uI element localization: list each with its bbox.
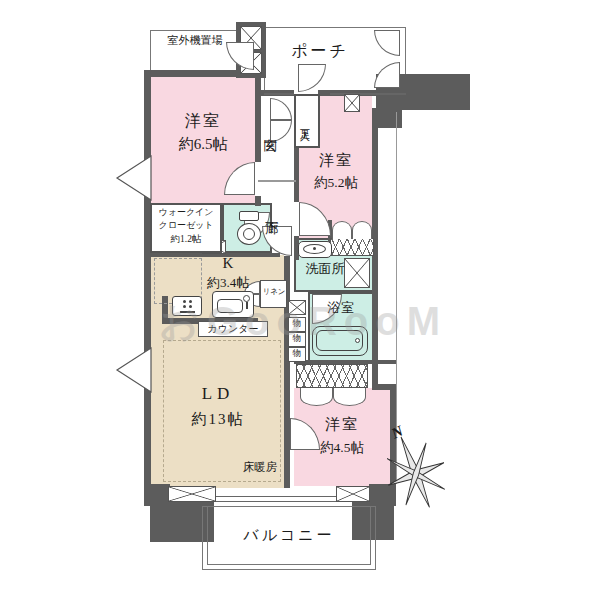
balcony-sash-a bbox=[214, 496, 336, 497]
vanity-sink-icon bbox=[298, 241, 332, 258]
closet-bedroom3-hatch bbox=[296, 364, 368, 388]
porch-bottom-a bbox=[264, 93, 294, 95]
ps-xbox-linen bbox=[288, 300, 306, 315]
label-balcony: バルコニー bbox=[226, 527, 352, 544]
closet-bedroom3-door-1 bbox=[300, 388, 333, 406]
window-triangle-lower bbox=[114, 346, 152, 394]
label-wic-line3: 約1.2帖 bbox=[152, 234, 220, 245]
label-storage-3: 物 bbox=[288, 349, 306, 359]
kitchen-sink-icon bbox=[212, 291, 254, 318]
label-shoe-box: 下足入 bbox=[299, 99, 311, 145]
wall-bedroom1-right-b bbox=[255, 196, 261, 206]
label-storage-1: 物 bbox=[288, 319, 306, 329]
wall-left bbox=[144, 70, 151, 506]
label-floor-heating: 床暖房 bbox=[222, 461, 298, 474]
closet-bedroom3-door-2 bbox=[333, 388, 366, 406]
wall-bedroom1-right-a bbox=[255, 70, 261, 162]
label-porch: ポーチ bbox=[272, 42, 368, 60]
window-xbox-right bbox=[336, 486, 370, 502]
floor-plan: N 室外機置場 ポーチ 洋室 約6.5帖 玄関 下足入 廊下 洋室 約5.2帖 … bbox=[0, 0, 600, 600]
entrance-step-line bbox=[258, 180, 296, 182]
label-linen: リネン bbox=[260, 288, 288, 297]
toilet-icon bbox=[234, 210, 264, 248]
porch-bottom-b bbox=[330, 93, 406, 95]
ps-xbox-topright bbox=[344, 94, 360, 112]
label-bedroom2-size: 約5.2帖 bbox=[296, 175, 376, 191]
label-wic-line2: クローゼット bbox=[152, 220, 220, 230]
window-xbox-left bbox=[168, 486, 216, 502]
label-washroom: 洗面所 bbox=[295, 262, 355, 277]
label-ld-name: LD bbox=[160, 384, 276, 404]
label-hallway: 廊下 bbox=[263, 188, 278, 236]
closet-bedroom2-hatch bbox=[330, 238, 374, 256]
label-bedroom1-size: 約6.5帖 bbox=[152, 136, 254, 153]
stove-icon bbox=[172, 296, 202, 316]
label-counter: カウンター bbox=[198, 323, 268, 335]
window-triangle-upper bbox=[114, 154, 152, 202]
closet-bedroom2-door-1 bbox=[332, 221, 352, 239]
compass-rose bbox=[378, 430, 454, 510]
label-kitchen-name: K bbox=[198, 255, 258, 272]
label-kitchen-size: 約3.4帖 bbox=[188, 276, 268, 291]
label-ld-size: 約13帖 bbox=[160, 411, 276, 428]
label-bedroom3-size: 約4.5帖 bbox=[298, 440, 386, 456]
label-bathroom: 浴室 bbox=[318, 301, 364, 316]
label-wic-line1: ウォークイン bbox=[152, 207, 220, 217]
label-bedroom2-name: 洋室 bbox=[300, 152, 372, 169]
balcony-sash-b bbox=[214, 501, 336, 502]
bathtub-icon bbox=[312, 326, 368, 356]
label-storage-2: 物 bbox=[288, 334, 306, 344]
label-bedroom3-name: 洋室 bbox=[304, 416, 380, 433]
label-bedroom1-name: 洋室 bbox=[152, 112, 254, 130]
label-outdoor-unit: 室外機置場 bbox=[150, 34, 240, 47]
closet-bedroom2-door-2 bbox=[352, 221, 372, 239]
wall-bottom-left bbox=[144, 484, 170, 504]
label-entrance: 玄関 bbox=[262, 102, 277, 158]
